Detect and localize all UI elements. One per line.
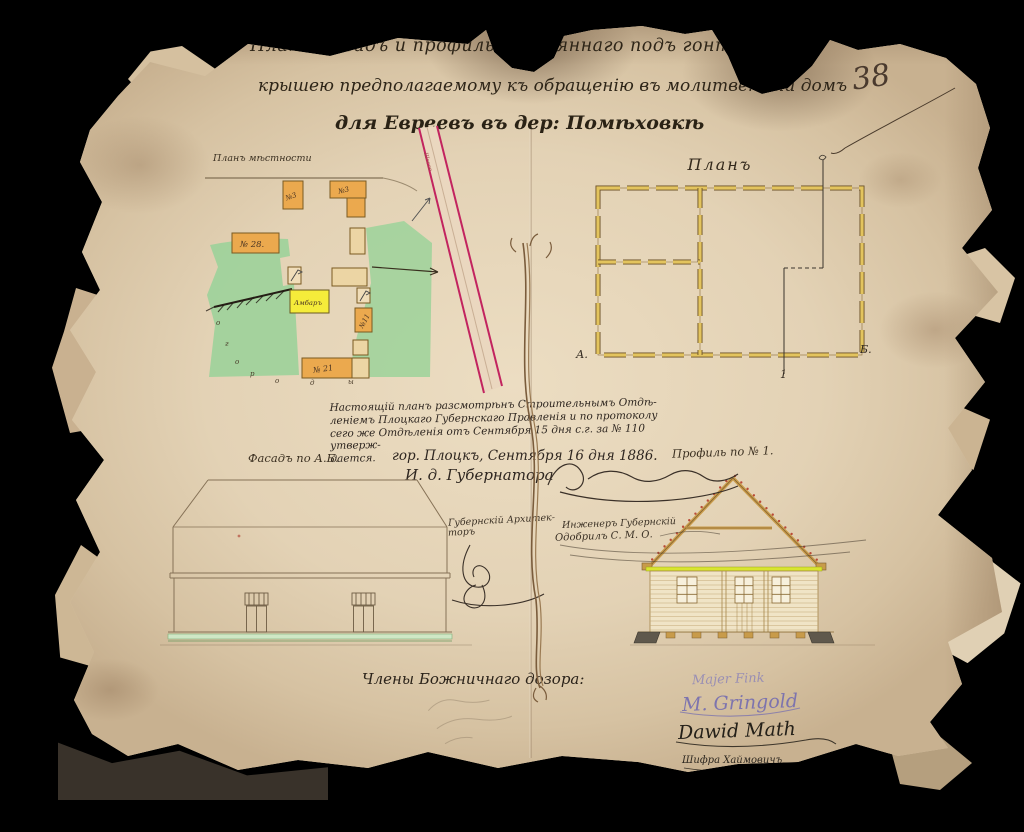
engineer-signature <box>560 531 866 561</box>
architect-signature <box>452 545 544 608</box>
paper-sheet: Планъ фасадъ и профиль деревяннаго подъ … <box>0 0 1024 832</box>
signature-underline <box>680 708 800 716</box>
binding-thread <box>511 234 552 702</box>
signature-underline <box>684 766 794 772</box>
governor-signature <box>548 464 738 501</box>
pencil-note <box>427 691 514 745</box>
ink-flourishes-overlay <box>0 0 1024 832</box>
pen-slash <box>831 88 955 153</box>
archival-document-scan: { "page": { "archive_number": "38", "tit… <box>0 0 1024 832</box>
signature-underline <box>676 739 836 747</box>
